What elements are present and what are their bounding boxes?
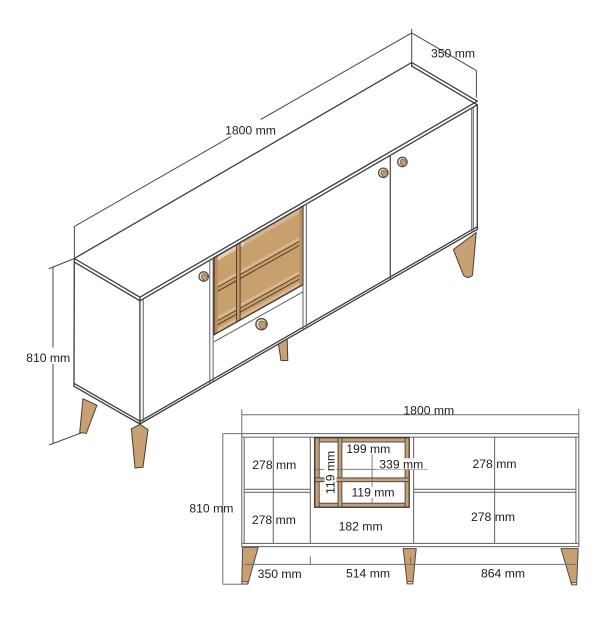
svg-text:278 mm: 278 mm <box>252 513 296 527</box>
svg-text:864 mm: 864 mm <box>481 566 525 580</box>
svg-text:119 mm: 119 mm <box>324 451 338 494</box>
svg-text:199 mm: 199 mm <box>346 442 390 456</box>
svg-text:119 mm: 119 mm <box>351 486 394 500</box>
svg-text:1800 mm: 1800 mm <box>403 403 454 417</box>
svg-text:278 mm: 278 mm <box>471 510 515 524</box>
svg-text:810 mm: 810 mm <box>26 351 70 365</box>
svg-text:350 mm: 350 mm <box>258 567 302 581</box>
svg-text:810 mm: 810 mm <box>189 502 233 516</box>
svg-text:339 mm: 339 mm <box>379 457 423 471</box>
svg-text:278 mm: 278 mm <box>252 458 296 472</box>
svg-text:182 mm: 182 mm <box>339 520 383 534</box>
svg-text:350 mm: 350 mm <box>431 47 475 61</box>
svg-text:514 mm: 514 mm <box>346 567 390 581</box>
svg-text:278 mm: 278 mm <box>472 457 516 471</box>
svg-text:1800 mm: 1800 mm <box>225 124 276 138</box>
